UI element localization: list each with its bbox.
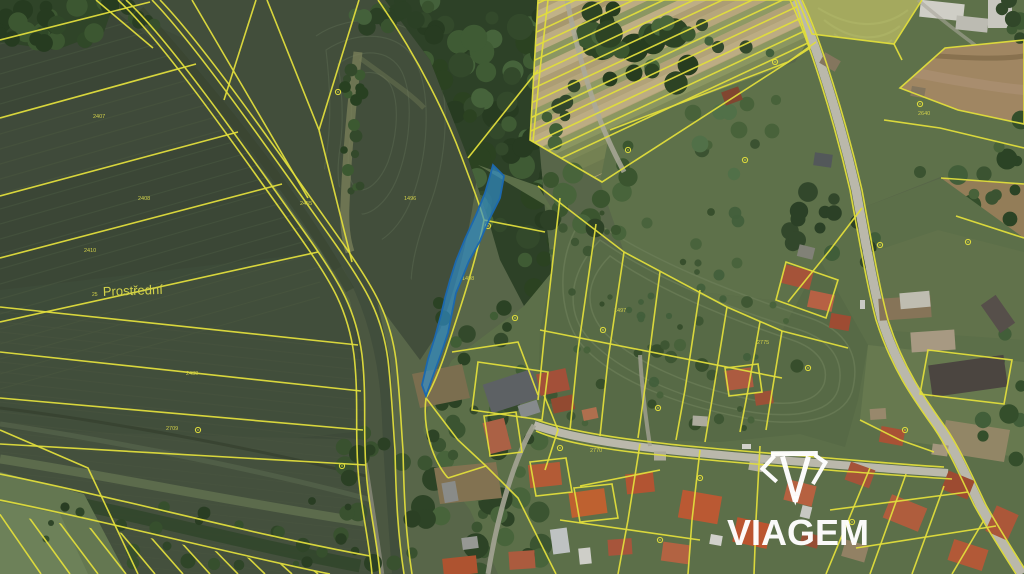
svg-text:VIAGEM: VIAGEM	[727, 512, 869, 553]
